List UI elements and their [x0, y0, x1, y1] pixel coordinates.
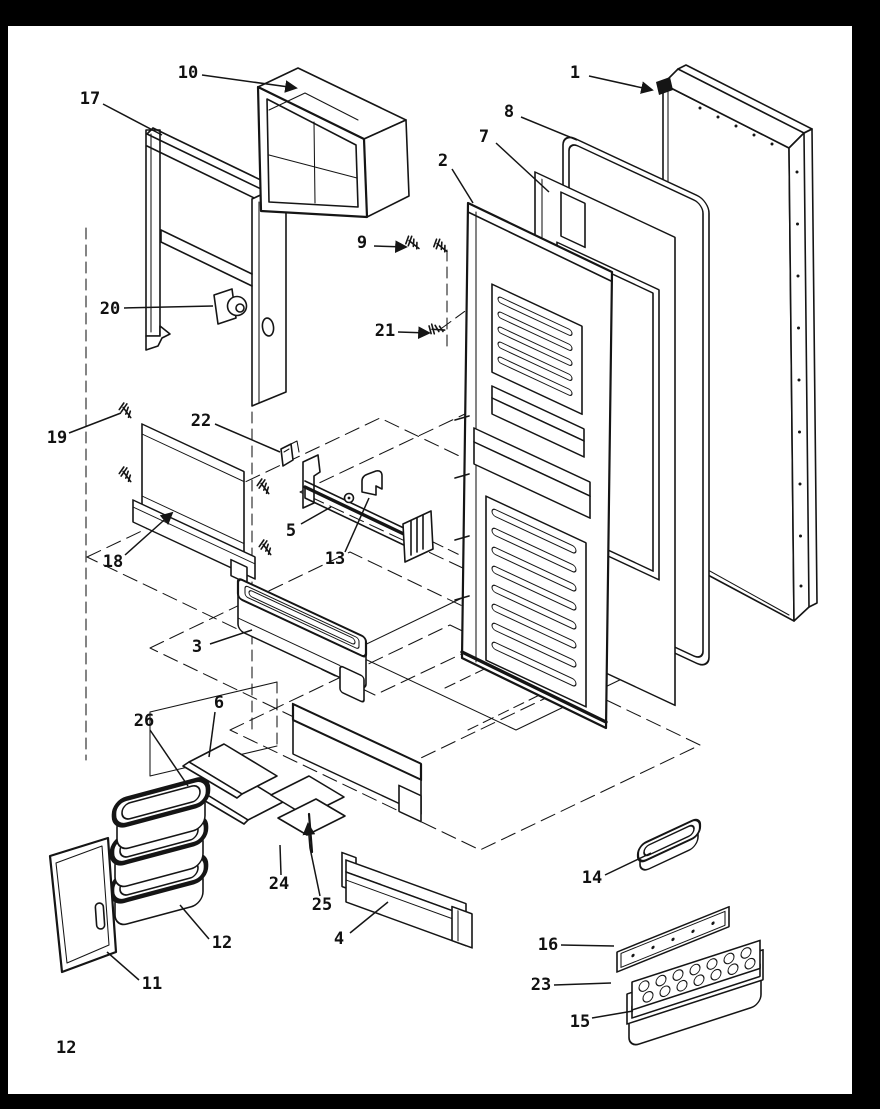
part-label-25: 25 [312, 895, 332, 915]
crisper-container-stack [112, 777, 208, 928]
part-label-5: 5 [286, 521, 296, 541]
part-label-9: 9 [357, 233, 367, 253]
part-label-21: 21 [375, 321, 395, 341]
part-label-16: 16 [538, 935, 558, 955]
part-label-2: 2 [438, 151, 448, 171]
part-label-1: 1 [570, 63, 580, 83]
part-label-23: 23 [531, 975, 551, 995]
page-border-top [0, 0, 880, 26]
part-label-13: 13 [325, 549, 345, 569]
exploded-diagram: 1872910172021192218513362624251211414162… [0, 0, 880, 1109]
part-label-11: 11 [142, 974, 162, 994]
part-leader-9 [374, 246, 406, 247]
part-label-3: 3 [192, 637, 202, 657]
catalog-page: 1872910172021192218513362624251211414162… [0, 0, 880, 1109]
part-label-22: 22 [191, 411, 211, 431]
page-border-left [0, 0, 8, 1109]
page-border-right [852, 0, 880, 1109]
part-label-15: 15 [570, 1012, 590, 1032]
part-label-7: 7 [479, 127, 489, 147]
part-label-12: 12 [212, 933, 232, 953]
part-label-26: 26 [134, 711, 154, 731]
page-border-bottom [0, 1094, 880, 1109]
access-panel [50, 838, 116, 972]
part-label-24: 24 [269, 874, 289, 894]
part-leader-24 [280, 845, 281, 875]
part-label-14: 14 [582, 868, 602, 888]
part-label-19: 19 [47, 428, 67, 448]
refrigerator-door-liner [455, 203, 612, 728]
part-label-6: 6 [214, 693, 224, 713]
part-label-8: 8 [504, 102, 514, 122]
part-label-18: 18 [103, 552, 123, 572]
part-label-10: 10 [178, 63, 198, 83]
page-number: 12 [56, 1038, 76, 1058]
part-label-17: 17 [80, 89, 100, 109]
part-leader-16 [561, 945, 614, 946]
part-leader-21 [398, 332, 429, 333]
part-label-20: 20 [100, 299, 120, 319]
part-label-4: 4 [334, 929, 344, 949]
